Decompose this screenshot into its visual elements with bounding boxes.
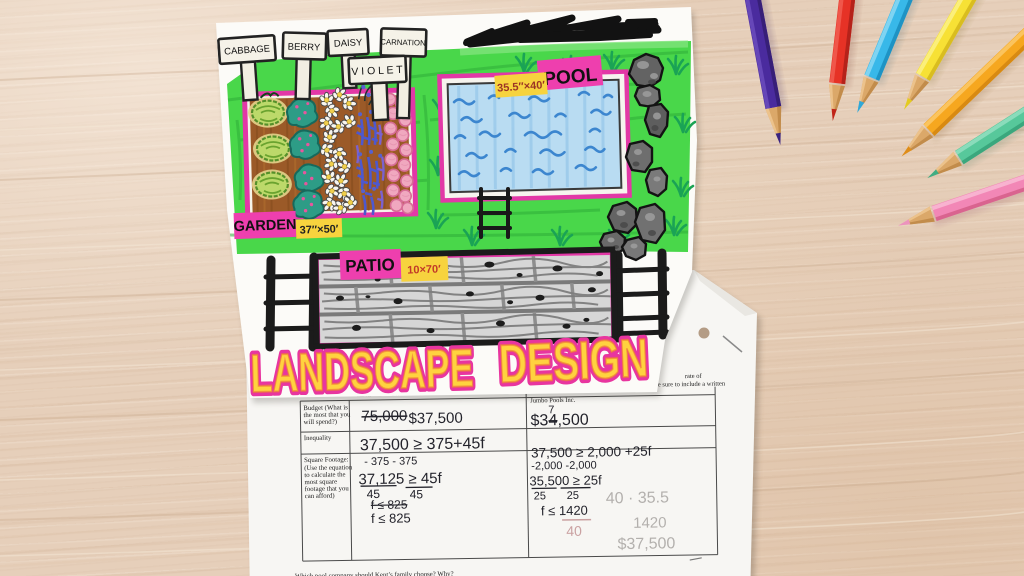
svg-text:$3: $3 bbox=[530, 412, 548, 429]
svg-text:45: 45 bbox=[410, 487, 424, 501]
svg-text:7: 7 bbox=[548, 404, 554, 416]
svg-text:35,500 ≥ 25f: 35,500 ≥ 25f bbox=[529, 472, 602, 488]
svg-text:BERRY: BERRY bbox=[288, 42, 321, 54]
svg-text:25: 25 bbox=[534, 490, 546, 502]
svg-text:Square Footage:: Square Footage: bbox=[304, 456, 349, 464]
svg-text:LANDSCAPE: LANDSCAPE bbox=[250, 338, 474, 404]
svg-text:,500: ,500 bbox=[557, 412, 589, 429]
svg-text:37,500 ≥ 2,000 +25f: 37,500 ≥ 2,000 +25f bbox=[531, 444, 652, 461]
svg-text:PATIO: PATIO bbox=[345, 255, 395, 276]
svg-text:V I O L E T: V I O L E T bbox=[351, 64, 403, 78]
svg-text:can afford): can afford) bbox=[305, 493, 335, 500]
svg-text:$37,500: $37,500 bbox=[408, 410, 462, 428]
svg-text:40: 40 bbox=[566, 523, 582, 539]
svg-text:f ≤ 1420: f ≤ 1420 bbox=[541, 503, 588, 519]
svg-text:rate of: rate of bbox=[685, 373, 703, 380]
svg-text:40 · 35.5: 40 · 35.5 bbox=[606, 489, 670, 507]
svg-text:75,000: 75,000 bbox=[361, 407, 407, 425]
svg-text:$37,500: $37,500 bbox=[617, 535, 675, 553]
svg-text:37,500 ≥ 375+45f: 37,500 ≥ 375+45f bbox=[360, 435, 486, 454]
svg-text:- 375 - 375: - 375 - 375 bbox=[364, 455, 417, 468]
svg-text:10×70′: 10×70′ bbox=[407, 263, 441, 276]
svg-text:DESIGN: DESIGN bbox=[498, 328, 649, 394]
svg-text:37″×50′: 37″×50′ bbox=[299, 223, 339, 236]
svg-text:f ≤ 825: f ≤ 825 bbox=[371, 510, 411, 526]
svg-text:GARDEN: GARDEN bbox=[233, 217, 296, 235]
svg-text:1420: 1420 bbox=[633, 514, 667, 532]
svg-text:Inequality: Inequality bbox=[304, 435, 332, 442]
svg-text:25: 25 bbox=[567, 490, 579, 502]
svg-text:CARNATION: CARNATION bbox=[380, 37, 426, 47]
svg-text:-2,000 -2,000: -2,000 -2,000 bbox=[531, 459, 597, 472]
svg-text:will spend?): will spend?) bbox=[303, 419, 337, 427]
svg-text:DAISY: DAISY bbox=[334, 37, 364, 50]
